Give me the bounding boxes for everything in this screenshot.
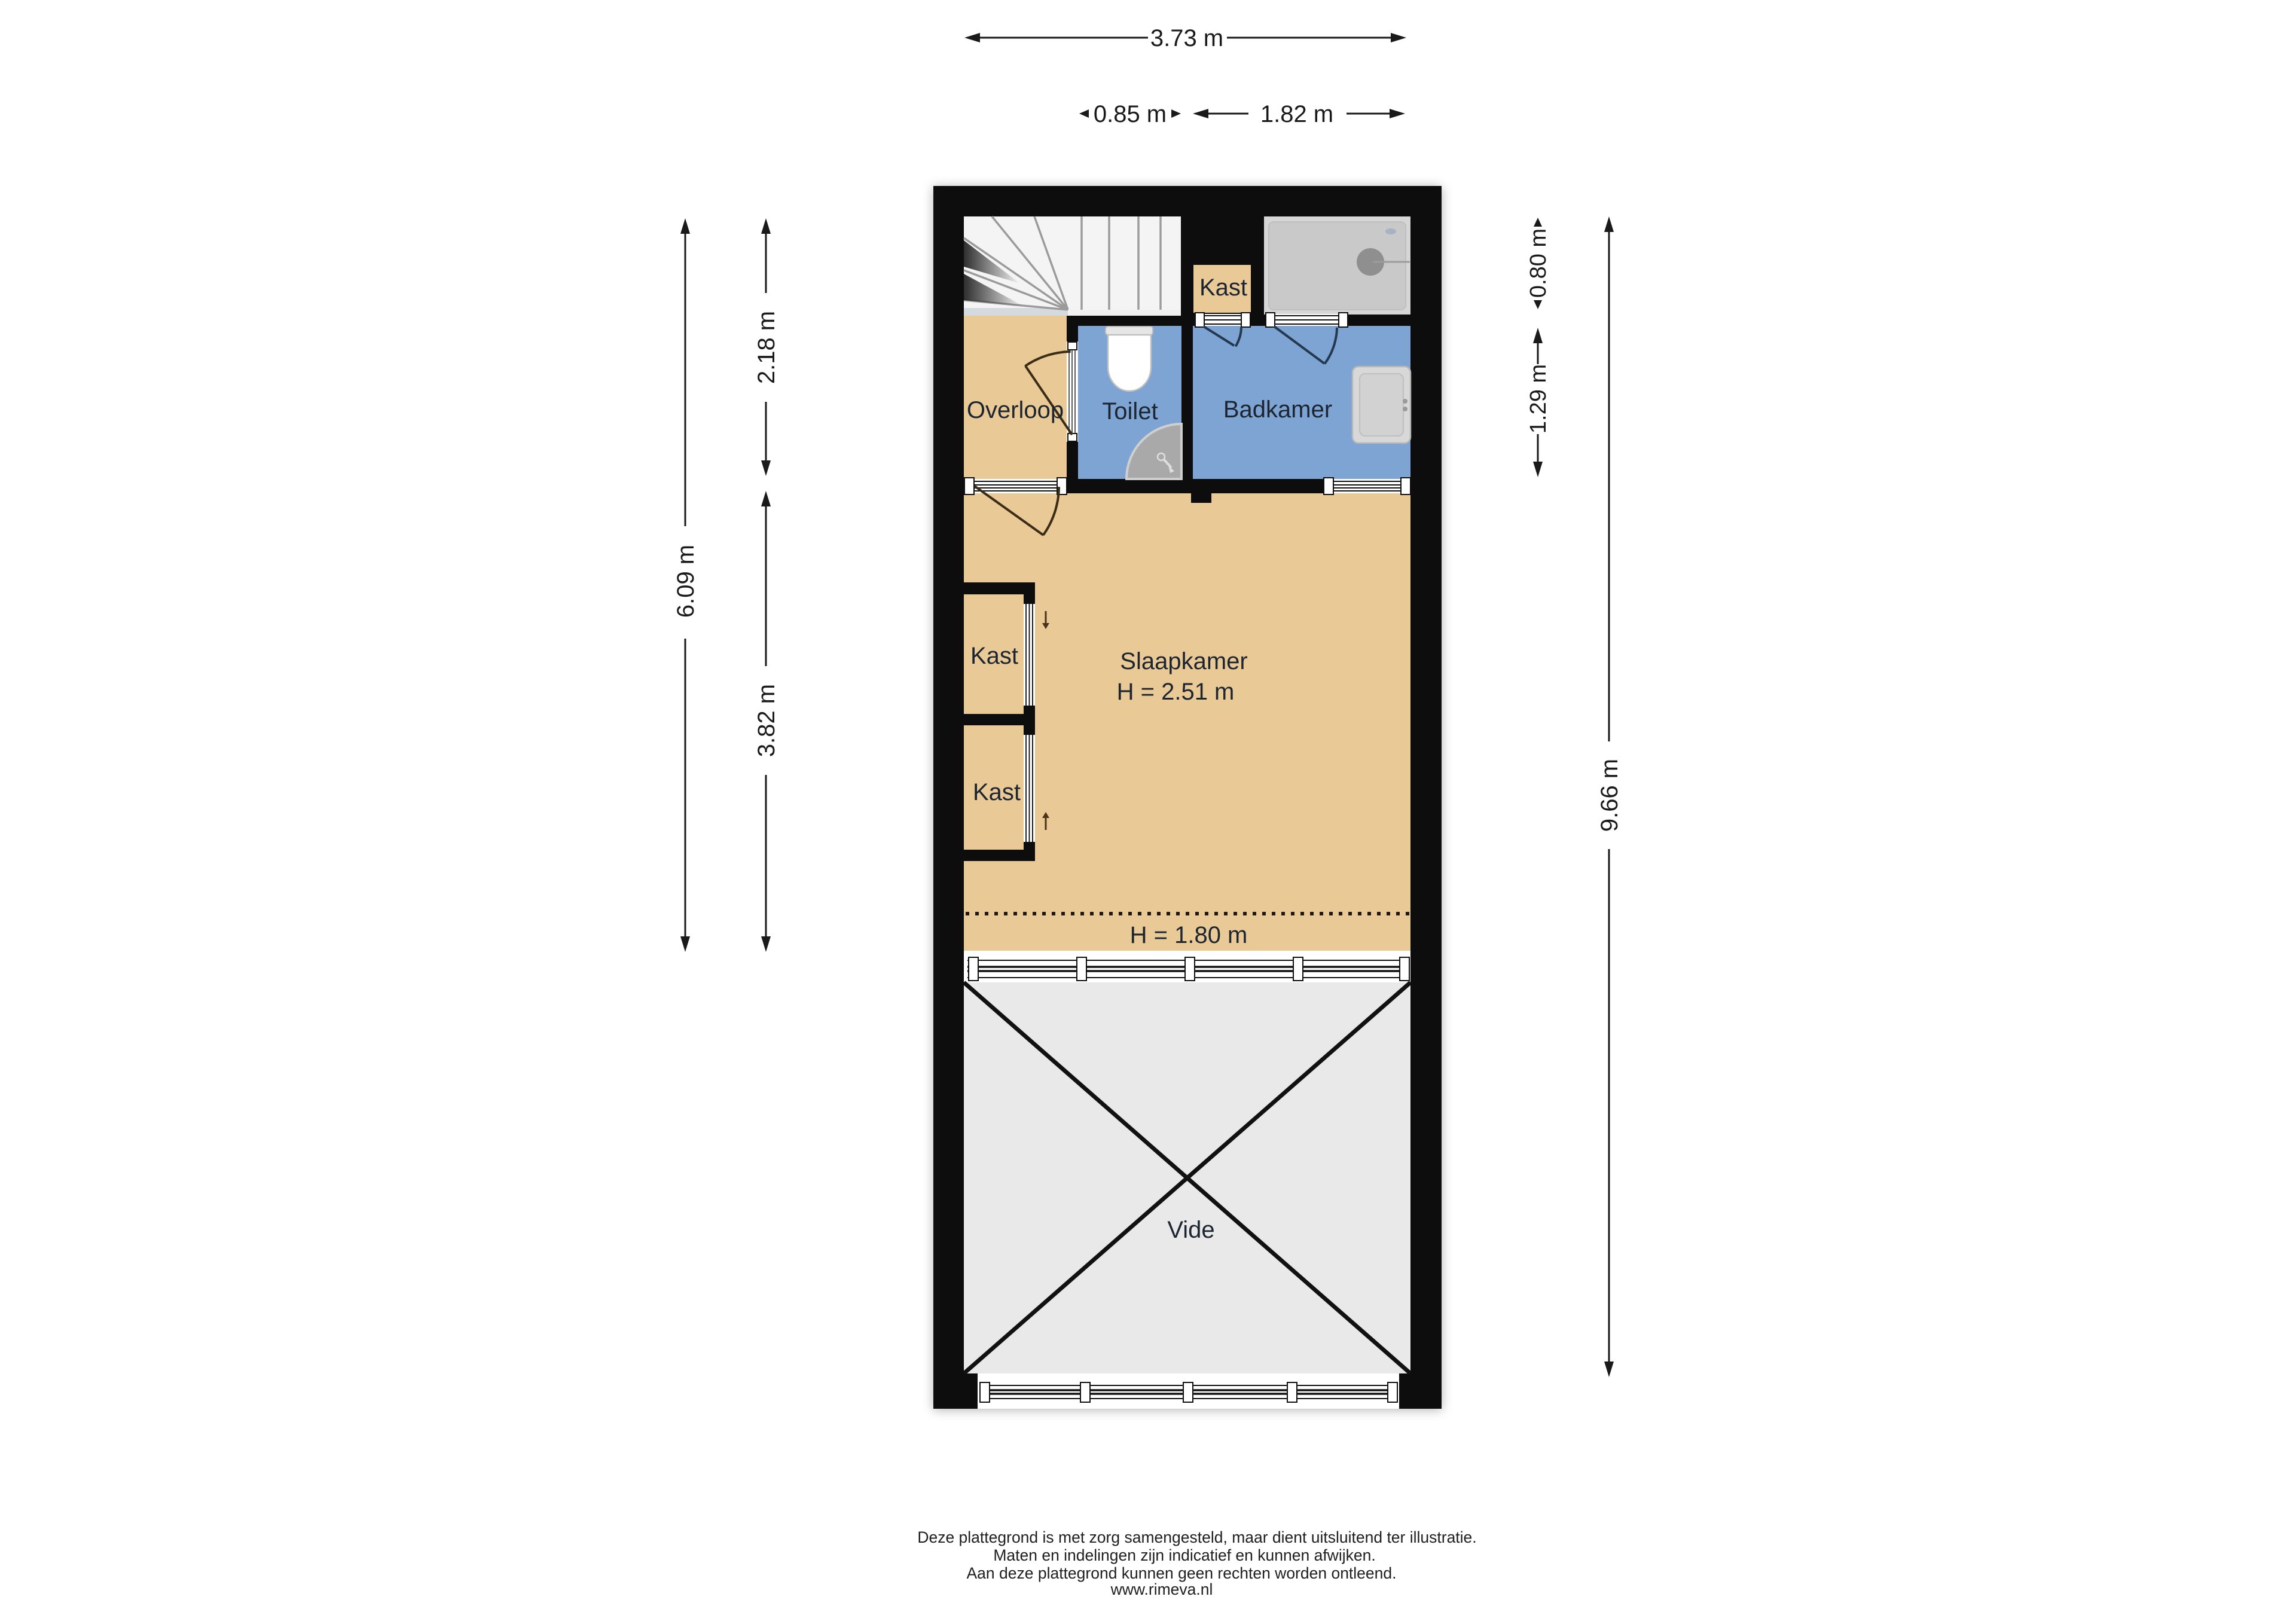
svg-text:2.18 m: 2.18 m	[753, 311, 780, 384]
svg-text:Deze plattegrond is met zorg s: Deze plattegrond is met zorg samengestel…	[917, 1528, 1476, 1546]
svg-text:Toilet: Toilet	[1102, 398, 1158, 425]
svg-text:1.82 m: 1.82 m	[1260, 101, 1333, 127]
svg-text:Kast: Kast	[973, 779, 1021, 805]
svg-text:Aan deze plattegrond kunnen ge: Aan deze plattegrond kunnen geen rechten…	[967, 1564, 1397, 1582]
svg-text:H = 1.80 m: H = 1.80 m	[1130, 922, 1248, 948]
svg-text:9.66 m: 9.66 m	[1596, 759, 1623, 832]
svg-text:0.85 m: 0.85 m	[1094, 101, 1167, 127]
svg-text:6.09 m: 6.09 m	[673, 545, 699, 618]
svg-text:Kast: Kast	[970, 643, 1018, 669]
svg-text:Badkamer: Badkamer	[1223, 396, 1332, 423]
svg-text:0.80 m: 0.80 m	[1526, 228, 1551, 298]
svg-text:Maten en indelingen zijn indic: Maten en indelingen zijn indicatief en k…	[993, 1546, 1375, 1564]
svg-text:Overloop: Overloop	[967, 397, 1064, 423]
svg-text:H = 2.51 m: H = 2.51 m	[1117, 679, 1235, 705]
svg-text:3.82 m: 3.82 m	[753, 684, 780, 757]
svg-text:3.73 m: 3.73 m	[1150, 25, 1223, 51]
svg-text:Vide: Vide	[1167, 1217, 1214, 1243]
svg-text:Slaapkamer: Slaapkamer	[1120, 648, 1247, 674]
svg-text:www.rimeva.nl: www.rimeva.nl	[1110, 1580, 1213, 1598]
svg-text:1.29 m: 1.29 m	[1526, 364, 1551, 434]
svg-text:Kast: Kast	[1199, 274, 1247, 301]
